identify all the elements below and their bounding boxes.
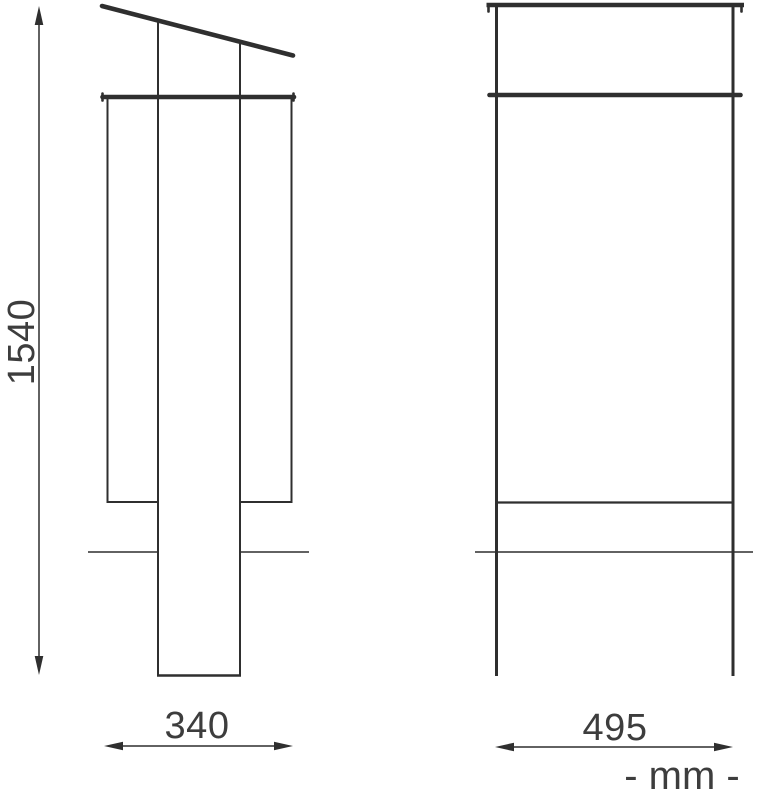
front-width-arrowhead-left xyxy=(495,743,514,752)
dimension-front-width: 495 xyxy=(495,707,733,751)
drawing-svg: 1540 340 495 - mm - xyxy=(0,0,768,800)
height-dimension-value: 1540 xyxy=(1,299,43,386)
front-width-dimension-value: 495 xyxy=(583,707,648,749)
side-depth-dimension-value: 340 xyxy=(165,705,230,747)
side-view xyxy=(88,6,309,676)
side-view-slanted-top-edge xyxy=(102,6,293,56)
dimension-side-depth: 340 xyxy=(104,705,293,750)
front-view xyxy=(475,5,753,676)
unit-label: - mm - xyxy=(624,754,740,798)
technical-drawing-canvas: 1540 340 495 - mm - xyxy=(0,0,768,800)
front-width-arrowhead-right xyxy=(714,743,733,752)
side-depth-arrowhead-left xyxy=(104,742,123,751)
dimension-height: 1540 xyxy=(1,6,43,675)
height-dimension-arrowhead-top xyxy=(35,6,44,25)
height-dimension-arrowhead-bottom xyxy=(35,656,44,675)
side-depth-arrowhead-right xyxy=(274,742,293,751)
